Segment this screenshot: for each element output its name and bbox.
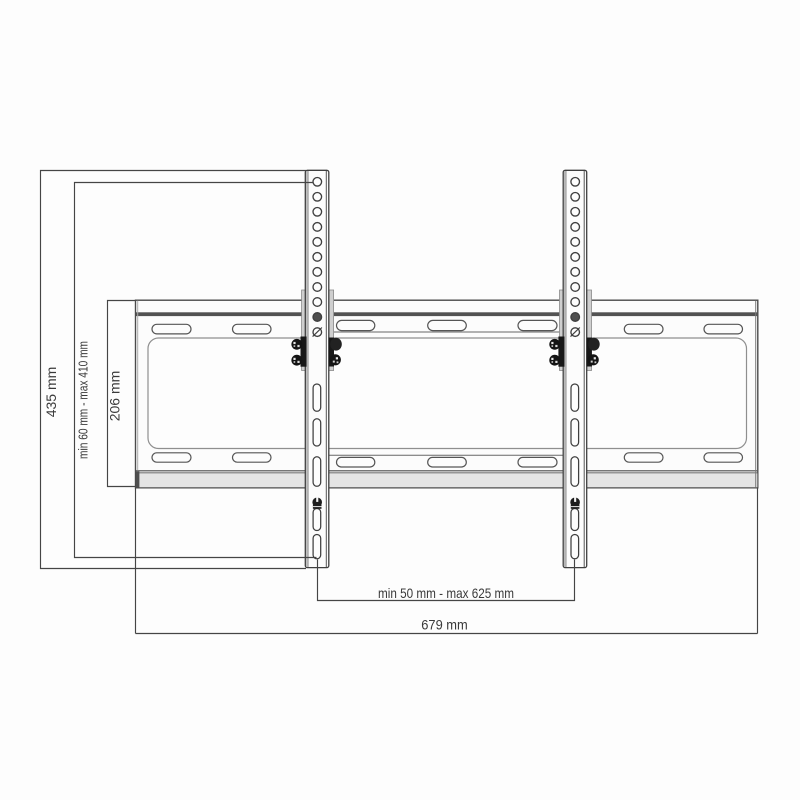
svg-text:min 60 mm - max 410 mm: min 60 mm - max 410 mm [75,341,90,459]
svg-text:min 50 mm - max 625 mm: min 50 mm - max 625 mm [378,586,514,601]
svg-text:679 mm: 679 mm [421,618,468,633]
svg-text:435 mm: 435 mm [43,367,59,418]
svg-text:206 mm: 206 mm [107,371,123,422]
